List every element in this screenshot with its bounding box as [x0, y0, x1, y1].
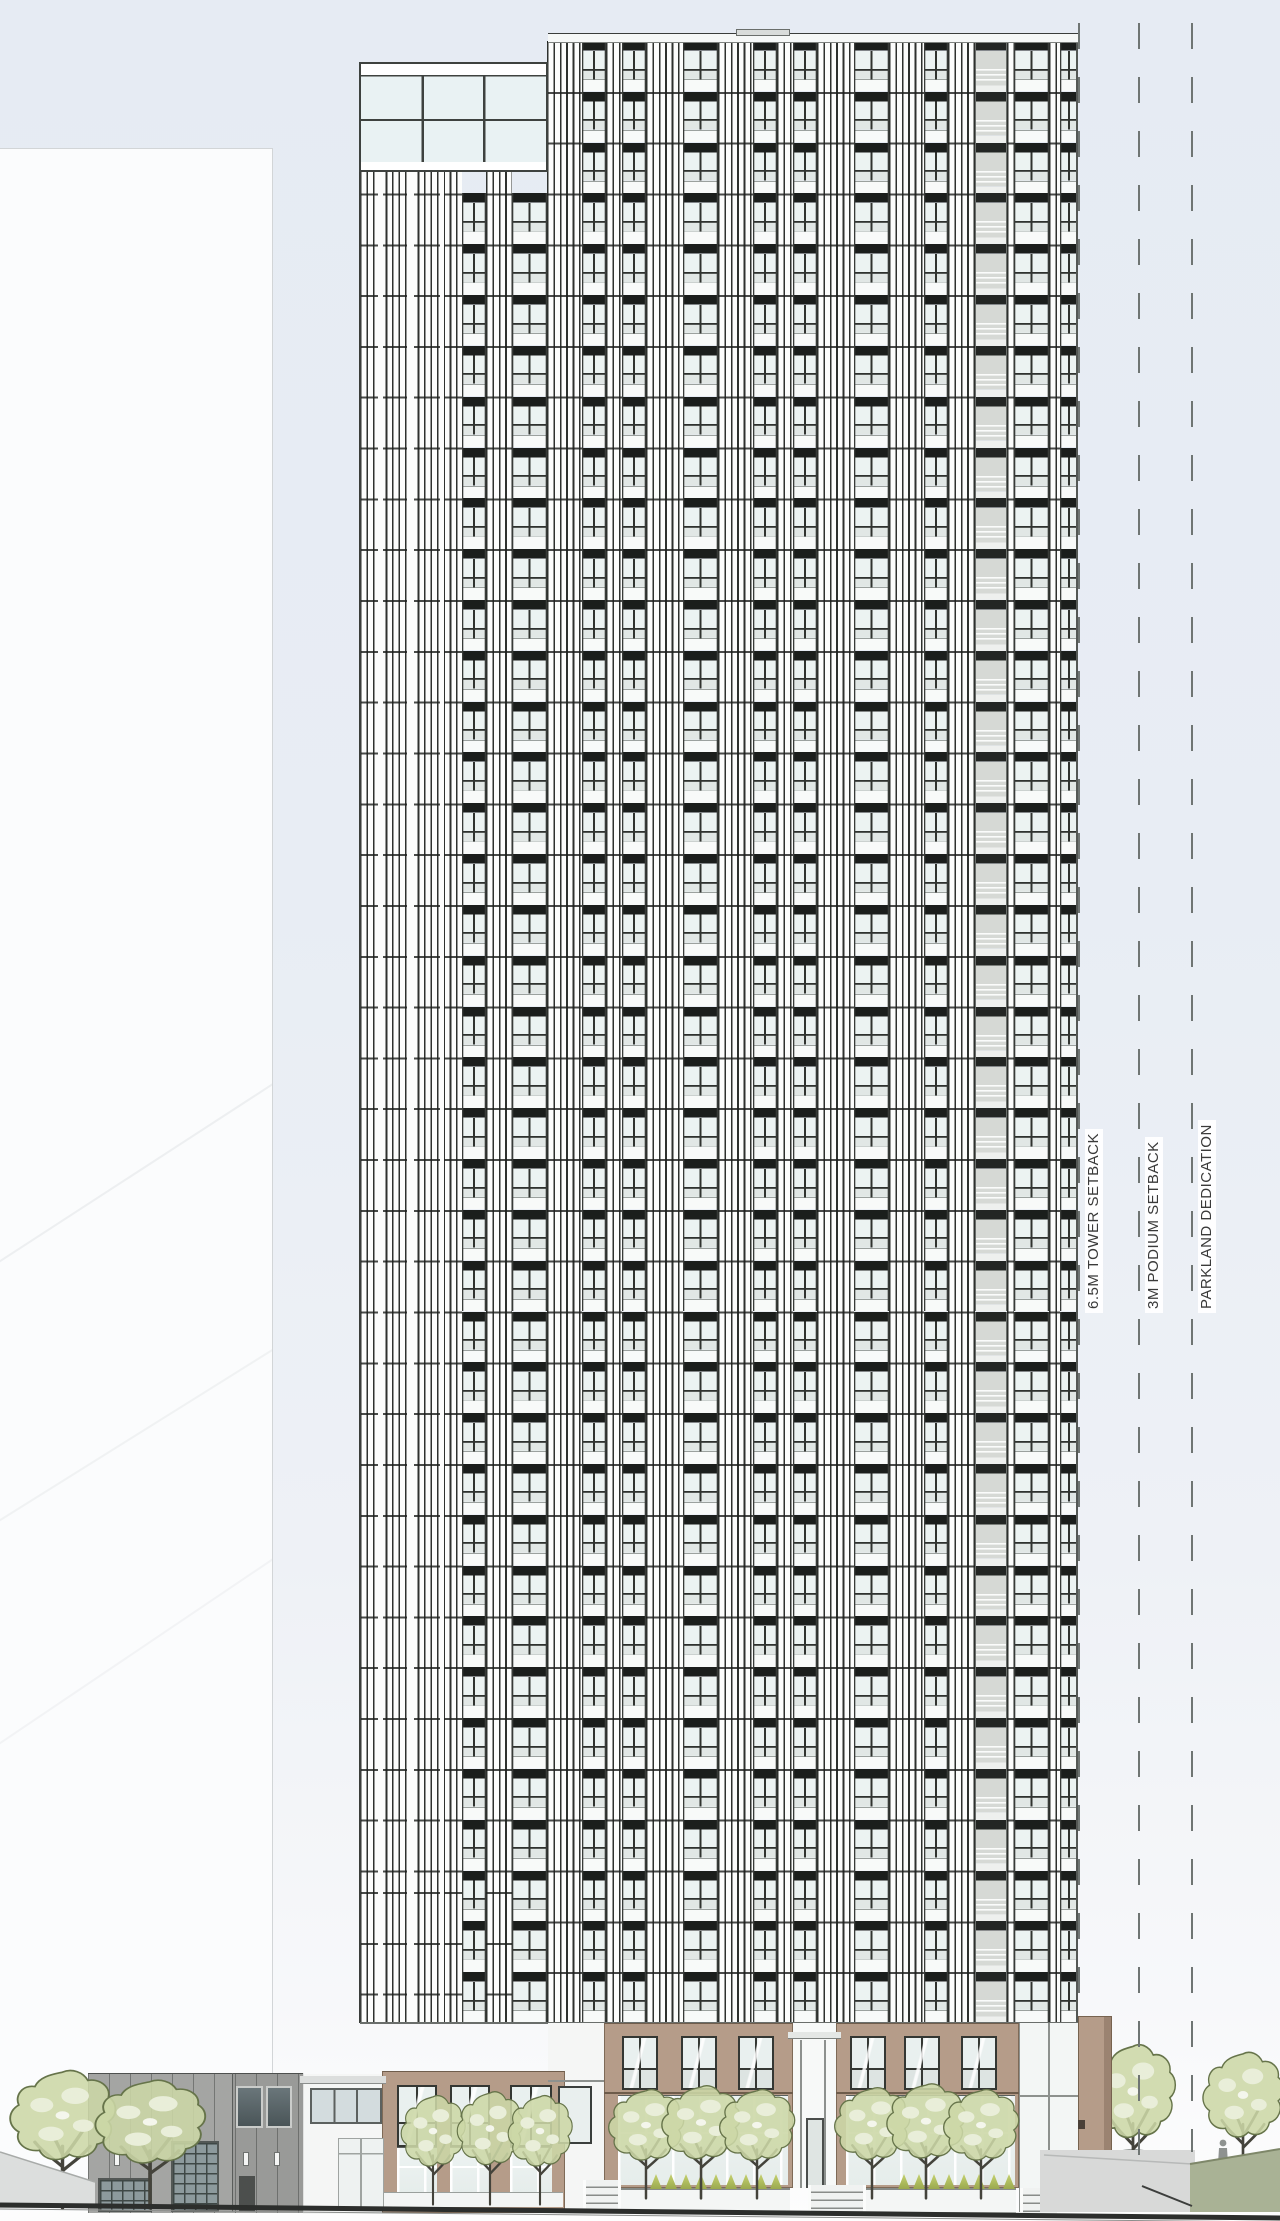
street-tree: [716, 2086, 798, 2200]
facade-window-cell: [622, 448, 646, 499]
balcony-cell: [975, 1261, 1007, 1312]
facade-window-cell: [854, 1261, 889, 1312]
facade-stripe-pier: [777, 41, 793, 2023]
facade-window-cell: [854, 1566, 889, 1617]
facade-window-cell: [683, 1566, 718, 1617]
facade-window-cell: [512, 397, 547, 448]
balcony-cell: [975, 1413, 1007, 1464]
facade-window-cell: [753, 1566, 777, 1617]
facade-window-cell: [793, 702, 817, 753]
infill-storefront: [338, 2138, 384, 2210]
facade-window-cell: [683, 1007, 718, 1058]
facade-window-cell: [1014, 498, 1049, 549]
facade-window-cell: [462, 1464, 486, 1515]
facade-window-cell: [622, 1159, 646, 1210]
facade-window-cell: [854, 1769, 889, 1820]
facade-window-cell: [512, 1159, 547, 1210]
facade-window-cell: [622, 1718, 646, 1769]
facade-window-cell: [462, 1921, 486, 1972]
facade-window-cell: [462, 1566, 486, 1617]
facade-window-cell: [512, 1413, 547, 1464]
facade-window-cell: [622, 1312, 646, 1363]
balcony-cell: [975, 956, 1007, 1007]
facade-window-cell: [462, 752, 486, 803]
facade-window-cell: [622, 702, 646, 753]
balcony-cell: [975, 1007, 1007, 1058]
facade-window-cell: [582, 346, 606, 397]
floor-lines: [646, 41, 683, 2023]
facade-window-cell: [622, 1921, 646, 1972]
facade-window-cell: [683, 1057, 718, 1108]
infill-clerestory-glass: [310, 2088, 382, 2124]
facade-window-cell: [462, 1108, 486, 1159]
facade-window-cell: [462, 854, 486, 905]
facade-window-cell: [582, 752, 606, 803]
facade-stripe-pier: [646, 41, 683, 2023]
facade-window-cell: [854, 1362, 889, 1413]
facade-window-cell: [683, 1667, 718, 1718]
facade-window-cell: [753, 702, 777, 753]
facade-window-cell: [924, 1921, 948, 1972]
facade-window-cell: [753, 448, 777, 499]
floor-lines: [718, 41, 753, 2023]
tower-setback-label: 6.5M TOWER SETBACK: [1085, 1129, 1103, 1313]
balcony-cell: [975, 1057, 1007, 1108]
facade-window-cell: [854, 1921, 889, 1972]
facade-window-cell: [1014, 1972, 1049, 2023]
infill-canopy: [300, 2076, 386, 2084]
facade-window-cell: [753, 1515, 777, 1566]
facade-window-cell: [462, 1667, 486, 1718]
facade-window-cell: [753, 1921, 777, 1972]
facade-window-cell: [462, 346, 486, 397]
facade-window-cell: [683, 1820, 718, 1871]
facade-window-cell: [582, 1972, 606, 2023]
facade-window-cell: [753, 1413, 777, 1464]
facade-window-cell: [793, 1057, 817, 1108]
facade-window-cell: [1014, 702, 1049, 753]
facade-window-cell: [582, 1871, 606, 1922]
facade-window-cell: [683, 854, 718, 905]
facade-window-cell: [683, 92, 718, 143]
facade-window-cell: [753, 1667, 777, 1718]
facade-window-cell: [512, 1057, 547, 1108]
facade-window-cell: [854, 905, 889, 956]
facade-window-cell: [854, 1515, 889, 1566]
facade-window-cell: [924, 702, 948, 753]
facade-window-cell: [854, 41, 889, 92]
facade-window-cell: [512, 803, 547, 854]
facade-window-cell: [924, 549, 948, 600]
facade-window-cell: [622, 193, 646, 244]
facade-window-cell: [753, 905, 777, 956]
facade-window-cell: [512, 702, 547, 753]
facade-window-cell: [622, 1464, 646, 1515]
facade-window-cell: [622, 549, 646, 600]
facade-window-cell: [512, 1515, 547, 1566]
facade-window-cell: [683, 1972, 718, 2023]
facade-window-cell: [793, 1159, 817, 1210]
facade-window-cell: [1014, 905, 1049, 956]
facade-window-cell: [1014, 752, 1049, 803]
facade-window-cell: [683, 193, 718, 244]
facade-window-cell: [622, 1007, 646, 1058]
facade-window-cell: [793, 143, 817, 194]
balcony-cell: [975, 702, 1007, 753]
facade-window-cell: [1014, 1210, 1049, 1261]
facade-window-cell: [793, 498, 817, 549]
podium-upper-window: [850, 2036, 886, 2090]
balcony-cell: [975, 346, 1007, 397]
facade-window-cell: [854, 1159, 889, 1210]
facade-window-cell: [793, 651, 817, 702]
facade-window-cell: [683, 1718, 718, 1769]
facade-window-cell: [512, 549, 547, 600]
facade-window-cell: [1014, 803, 1049, 854]
facade-window-cell: [683, 1464, 718, 1515]
facade-window-cell: [622, 803, 646, 854]
facade-window-cell: [924, 1007, 948, 1058]
facade-window-cell: [683, 1616, 718, 1667]
facade-window-cell: [793, 1972, 817, 2023]
facade-window-cell: [924, 1159, 948, 1210]
facade-window-cell: [1014, 295, 1049, 346]
facade-window-cell: [753, 1210, 777, 1261]
facade-window-cell: [793, 1718, 817, 1769]
facade-window-cell: [582, 244, 606, 295]
facade-window-cell: [753, 1616, 777, 1667]
facade-window-cell: [1014, 448, 1049, 499]
facade-window-cell: [1014, 1261, 1049, 1312]
facade-window-cell: [462, 1362, 486, 1413]
balcony-cell: [975, 1667, 1007, 1718]
facade-window-cell: [854, 1972, 889, 2023]
facade-window-cell: [793, 549, 817, 600]
facade-window-cell: [512, 752, 547, 803]
street-tree: [940, 2086, 1022, 2200]
facade-window-cell: [622, 1820, 646, 1871]
wall-light: [274, 2152, 280, 2166]
facade-window-cell: [793, 600, 817, 651]
entry-mullion: [824, 2040, 826, 2188]
facade-window-cell: [512, 1820, 547, 1871]
facade-window-cell: [924, 1718, 948, 1769]
facade-window-cell: [462, 1769, 486, 1820]
facade-window-cell: [1014, 600, 1049, 651]
balcony-cell: [975, 1312, 1007, 1363]
facade-window-cell: [683, 1261, 718, 1312]
facade-window-cell: [924, 1667, 948, 1718]
facade-window-cell: [462, 549, 486, 600]
facade-window-cell: [683, 600, 718, 651]
facade-window-cell: [1014, 549, 1049, 600]
mechanical-penthouse: [359, 62, 548, 172]
facade-window-cell: [854, 1718, 889, 1769]
facade-window-cell: [854, 1413, 889, 1464]
facade-window-cell: [793, 346, 817, 397]
facade-window-cell: [683, 1871, 718, 1922]
facade-window-cell: [924, 1566, 948, 1617]
facade-window-cell: [683, 803, 718, 854]
balcony-cell: [975, 244, 1007, 295]
facade-window-cell: [753, 193, 777, 244]
facade-window-cell: [1014, 854, 1049, 905]
facade-window-cell: [622, 1871, 646, 1922]
facade-window-cell: [512, 854, 547, 905]
facade-window-cell: [854, 1871, 889, 1922]
balcony-cell: [975, 1769, 1007, 1820]
facade-window-cell: [793, 448, 817, 499]
facade-window-cell: [622, 346, 646, 397]
facade-window-cell: [753, 1108, 777, 1159]
podium-setback-line: [1138, 23, 1140, 2166]
balcony-cell: [975, 1515, 1007, 1566]
balcony-cell: [975, 1871, 1007, 1922]
facade-window-cell: [924, 92, 948, 143]
street-tree: [505, 2092, 575, 2206]
facade-window-cell: [582, 1515, 606, 1566]
tower-parapet: [548, 33, 1078, 43]
facade-window-cell: [924, 600, 948, 651]
facade-window-cell: [924, 1210, 948, 1261]
facade-window-cell: [793, 1007, 817, 1058]
facade-window-cell: [924, 1820, 948, 1871]
facade-window-cell: [854, 1057, 889, 1108]
balcony-cell: [975, 1210, 1007, 1261]
facade-window-cell: [622, 1616, 646, 1667]
facade-window-cell: [753, 1718, 777, 1769]
facade-window-cell: [793, 905, 817, 956]
facade-window-cell: [1014, 1871, 1049, 1922]
facade-window-cell: [854, 1007, 889, 1058]
facade-window-cell: [582, 1769, 606, 1820]
facade-window-cell: [582, 1312, 606, 1363]
facade-window-cell: [1014, 1413, 1049, 1464]
facade-window-cell: [753, 752, 777, 803]
facade-window-cell: [462, 295, 486, 346]
facade-window-cell: [793, 956, 817, 1007]
facade-window-cell: [1014, 1159, 1049, 1210]
facade-window-cell: [793, 1362, 817, 1413]
facade-window-cell: [793, 1769, 817, 1820]
facade-window-cell: [1014, 1515, 1049, 1566]
facade-window-cell: [462, 1261, 486, 1312]
entry-door: [806, 2118, 824, 2188]
facade-window-cell: [683, 905, 718, 956]
balcony-cell: [975, 1820, 1007, 1871]
facade-window-cell: [854, 600, 889, 651]
podium-upper-window: [622, 2036, 658, 2090]
facade-window-cell: [462, 651, 486, 702]
facade-window-cell: [462, 193, 486, 244]
facade-window-cell: [924, 956, 948, 1007]
facade-window-cell: [854, 1312, 889, 1363]
facade-window-cell: [1014, 1362, 1049, 1413]
facade-window-cell: [622, 905, 646, 956]
balcony-cell: [975, 1921, 1007, 1972]
facade-window-cell: [582, 1159, 606, 1210]
facade-stripe-pier: [889, 41, 924, 2023]
facade-window-cell: [462, 803, 486, 854]
balcony-cell: [975, 1159, 1007, 1210]
facade-window-cell: [512, 1921, 547, 1972]
facade-window-cell: [683, 956, 718, 1007]
facade-window-cell: [582, 803, 606, 854]
facade-window-cell: [622, 1210, 646, 1261]
facade-window-cell: [854, 1210, 889, 1261]
facade-window-cell: [1014, 193, 1049, 244]
facade-window-cell: [854, 295, 889, 346]
floor-lines: [1007, 41, 1014, 2023]
facade-window-cell: [512, 1871, 547, 1922]
facade-window-cell: [512, 1312, 547, 1363]
shrubs: [1232, 2148, 1280, 2174]
facade-window-cell: [582, 1413, 606, 1464]
facade-window-cell: [512, 905, 547, 956]
facade-window-cell: [582, 1820, 606, 1871]
facade-window-cell: [582, 600, 606, 651]
facade-window-cell: [683, 1769, 718, 1820]
facade-window-cell: [582, 193, 606, 244]
facade-window-cell: [1014, 1007, 1049, 1058]
facade-window-cell: [582, 397, 606, 448]
balcony-cell: [975, 1566, 1007, 1617]
facade-window-cell: [462, 1820, 486, 1871]
facade-stripe-pier: [718, 41, 753, 2023]
facade-window-cell: [854, 1667, 889, 1718]
facade-window-cell: [1014, 956, 1049, 1007]
facade-window-cell: [1014, 41, 1049, 92]
facade-window-cell: [854, 651, 889, 702]
gray-building-door: [239, 2176, 255, 2212]
east-glazing-transom: [1019, 2095, 1078, 2097]
balcony-cell: [975, 1362, 1007, 1413]
facade-window-cell: [924, 295, 948, 346]
facade-window-cell: [622, 92, 646, 143]
facade-window-cell: [683, 1921, 718, 1972]
facade-window-cell: [462, 1057, 486, 1108]
facade-window-cell: [793, 803, 817, 854]
facade-window-cell: [462, 956, 486, 1007]
facade-window-cell: [924, 854, 948, 905]
facade-window-cell: [622, 1667, 646, 1718]
facade-window-cell: [512, 1362, 547, 1413]
facade-window-cell: [462, 1159, 486, 1210]
facade-window-cell: [462, 1210, 486, 1261]
facade-window-cell: [512, 1464, 547, 1515]
architectural-elevation-drawing: 6.5M TOWER SETBACK 3M PODIUM SETBACK PAR…: [0, 0, 1280, 2221]
facade-window-cell: [683, 651, 718, 702]
facade-window-cell: [462, 905, 486, 956]
facade-window-cell: [512, 193, 547, 244]
facade-window-cell: [753, 803, 777, 854]
facade-window-cell: [753, 854, 777, 905]
facade-window-cell: [924, 1413, 948, 1464]
facade-window-cell: [753, 1312, 777, 1363]
pier-bracket: [1078, 2120, 1085, 2129]
facade-window-cell: [753, 1972, 777, 2023]
facade-window-cell: [924, 1057, 948, 1108]
facade-window-cell: [924, 1769, 948, 1820]
floor-lines: [606, 41, 622, 2023]
parkland-dedication-label: PARKLAND DEDICATION: [1198, 1120, 1216, 1313]
floor-lines: [777, 41, 793, 2023]
facade-window-cell: [1014, 1108, 1049, 1159]
facade-window-cell: [753, 1362, 777, 1413]
facade-window-cell: [753, 1007, 777, 1058]
facade-window-cell: [582, 854, 606, 905]
facade-window-cell: [753, 1820, 777, 1871]
facade-window-cell: [582, 143, 606, 194]
facade-window-cell: [924, 1515, 948, 1566]
entry-mullion: [800, 2040, 802, 2188]
facade-window-cell: [622, 752, 646, 803]
facade-window-cell: [753, 41, 777, 92]
facade-window-cell: [512, 1769, 547, 1820]
facade-window-cell: [622, 854, 646, 905]
facade-window-cell: [793, 397, 817, 448]
facade-window-cell: [512, 956, 547, 1007]
facade-window-cell: [582, 1921, 606, 1972]
roof-mechanical-bump: [736, 29, 790, 36]
facade-window-cell: [1014, 244, 1049, 295]
facade-window-cell: [462, 1413, 486, 1464]
facade-window-cell: [512, 1261, 547, 1312]
facade-window-cell: [1014, 1718, 1049, 1769]
facade-window-cell: [854, 92, 889, 143]
facade-window-cell: [854, 1464, 889, 1515]
facade-window-cell: [683, 1210, 718, 1261]
facade-window-cell: [683, 1108, 718, 1159]
facade-window-cell: [854, 1108, 889, 1159]
balcony-cell: [975, 448, 1007, 499]
balcony-cell: [975, 498, 1007, 549]
facade-window-cell: [512, 1972, 547, 2023]
facade-window-cell: [753, 549, 777, 600]
facade-window-cell: [582, 41, 606, 92]
facade-window-cell: [683, 498, 718, 549]
facade-window-cell: [924, 803, 948, 854]
facade-window-cell: [854, 193, 889, 244]
facade-window-cell: [622, 1566, 646, 1617]
facade-window-cell: [512, 244, 547, 295]
facade-window-cell: [924, 346, 948, 397]
facade-window-cell: [924, 41, 948, 92]
facade-window-cell: [924, 1261, 948, 1312]
stripe-gap: [407, 172, 414, 2023]
facade-window-cell: [622, 1057, 646, 1108]
facade-window-cell: [462, 1616, 486, 1667]
floor-lines: [817, 41, 854, 2023]
facade-window-cell: [683, 448, 718, 499]
facade-window-cell: [924, 498, 948, 549]
facade-window-cell: [793, 1464, 817, 1515]
facade-stripe-pier: [606, 41, 622, 2023]
floor-lines: [547, 41, 582, 2023]
facade-window-cell: [854, 1820, 889, 1871]
facade-window-cell: [924, 1108, 948, 1159]
facade-window-cell: [683, 295, 718, 346]
facade-window-cell: [512, 1566, 547, 1617]
facade-window-cell: [462, 397, 486, 448]
facade-window-cell: [683, 346, 718, 397]
facade-window-cell: [512, 498, 547, 549]
facade-window-cell: [622, 1515, 646, 1566]
facade-window-cell: [753, 1769, 777, 1820]
facade-window-cell: [924, 1616, 948, 1667]
floor-lines: [1049, 41, 1060, 2023]
facade-window-cell: [924, 448, 948, 499]
